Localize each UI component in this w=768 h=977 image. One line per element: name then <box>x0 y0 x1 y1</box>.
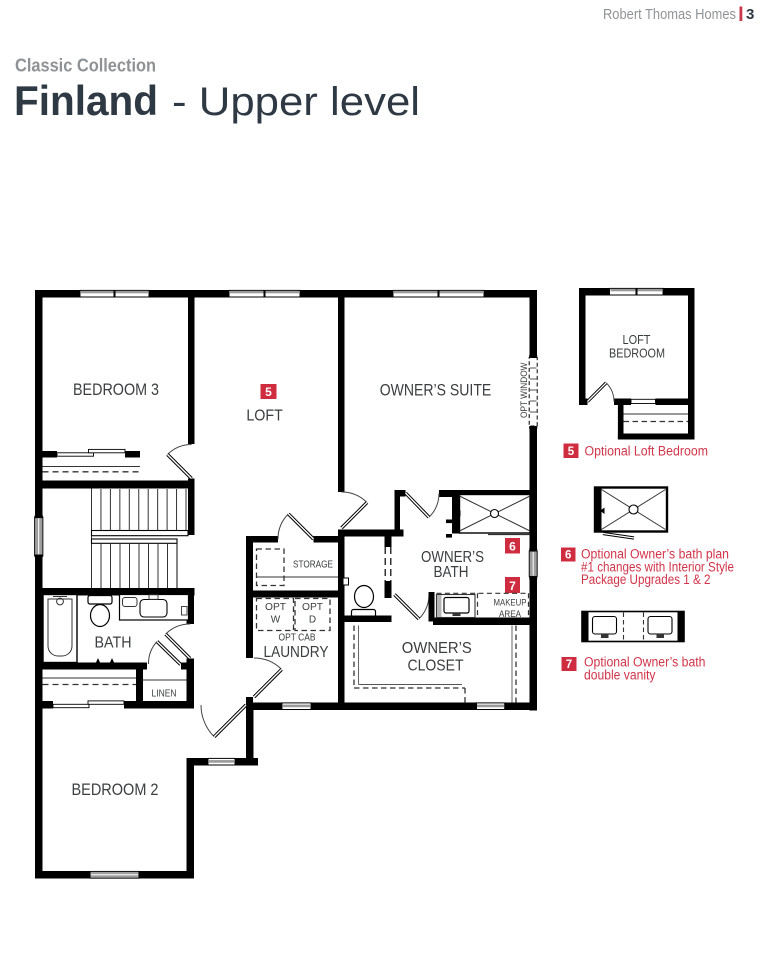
svg-text:MAKEUP: MAKEUP <box>494 598 527 609</box>
svg-text:Finland: Finland <box>14 77 158 124</box>
svg-text:- Upper level: - Upper level <box>172 80 420 124</box>
svg-text:OWNER’S SUITE: OWNER’S SUITE <box>380 381 492 400</box>
svg-text:BEDROOM 3: BEDROOM 3 <box>73 380 159 399</box>
svg-text:BEDROOM 2: BEDROOM 2 <box>72 780 159 799</box>
svg-text:W: W <box>271 615 281 626</box>
svg-text:LOFT: LOFT <box>623 333 651 347</box>
svg-text:OPT CAB: OPT CAB <box>279 633 316 644</box>
svg-text:BATH: BATH <box>434 564 469 581</box>
svg-text:Optional Loft Bedroom: Optional Loft Bedroom <box>585 444 709 459</box>
svg-text:LINEN: LINEN <box>152 689 177 700</box>
svg-text:double vanity: double vanity <box>584 668 656 683</box>
svg-text:Classic Collection: Classic Collection <box>15 56 156 76</box>
svg-text:7: 7 <box>509 579 516 593</box>
svg-text:6: 6 <box>565 550 571 562</box>
svg-text:3: 3 <box>746 6 754 23</box>
svg-text:OPT WINDOW: OPT WINDOW <box>519 362 529 418</box>
svg-text:BEDROOM: BEDROOM <box>609 347 665 361</box>
svg-text:AREA: AREA <box>499 609 522 620</box>
svg-text:D: D <box>309 615 316 626</box>
svg-text:OPT: OPT <box>302 602 323 613</box>
svg-text:CLOSET: CLOSET <box>408 658 464 675</box>
svg-text:LAUNDRY: LAUNDRY <box>264 644 329 661</box>
svg-text:5: 5 <box>265 385 272 399</box>
svg-text:6: 6 <box>509 539 516 553</box>
svg-text:LOFT: LOFT <box>246 408 283 425</box>
svg-text:STORAGE: STORAGE <box>293 559 333 571</box>
svg-text:Package Upgrades 1 & 2: Package Upgrades 1 & 2 <box>581 572 711 587</box>
svg-text:OWNER’S: OWNER’S <box>402 640 472 657</box>
svg-text:OPT: OPT <box>265 602 286 613</box>
svg-text:5: 5 <box>568 446 575 458</box>
svg-text:BATH: BATH <box>95 635 132 652</box>
svg-text:Robert Thomas Homes: Robert Thomas Homes <box>603 7 736 23</box>
svg-text:7: 7 <box>566 659 572 671</box>
